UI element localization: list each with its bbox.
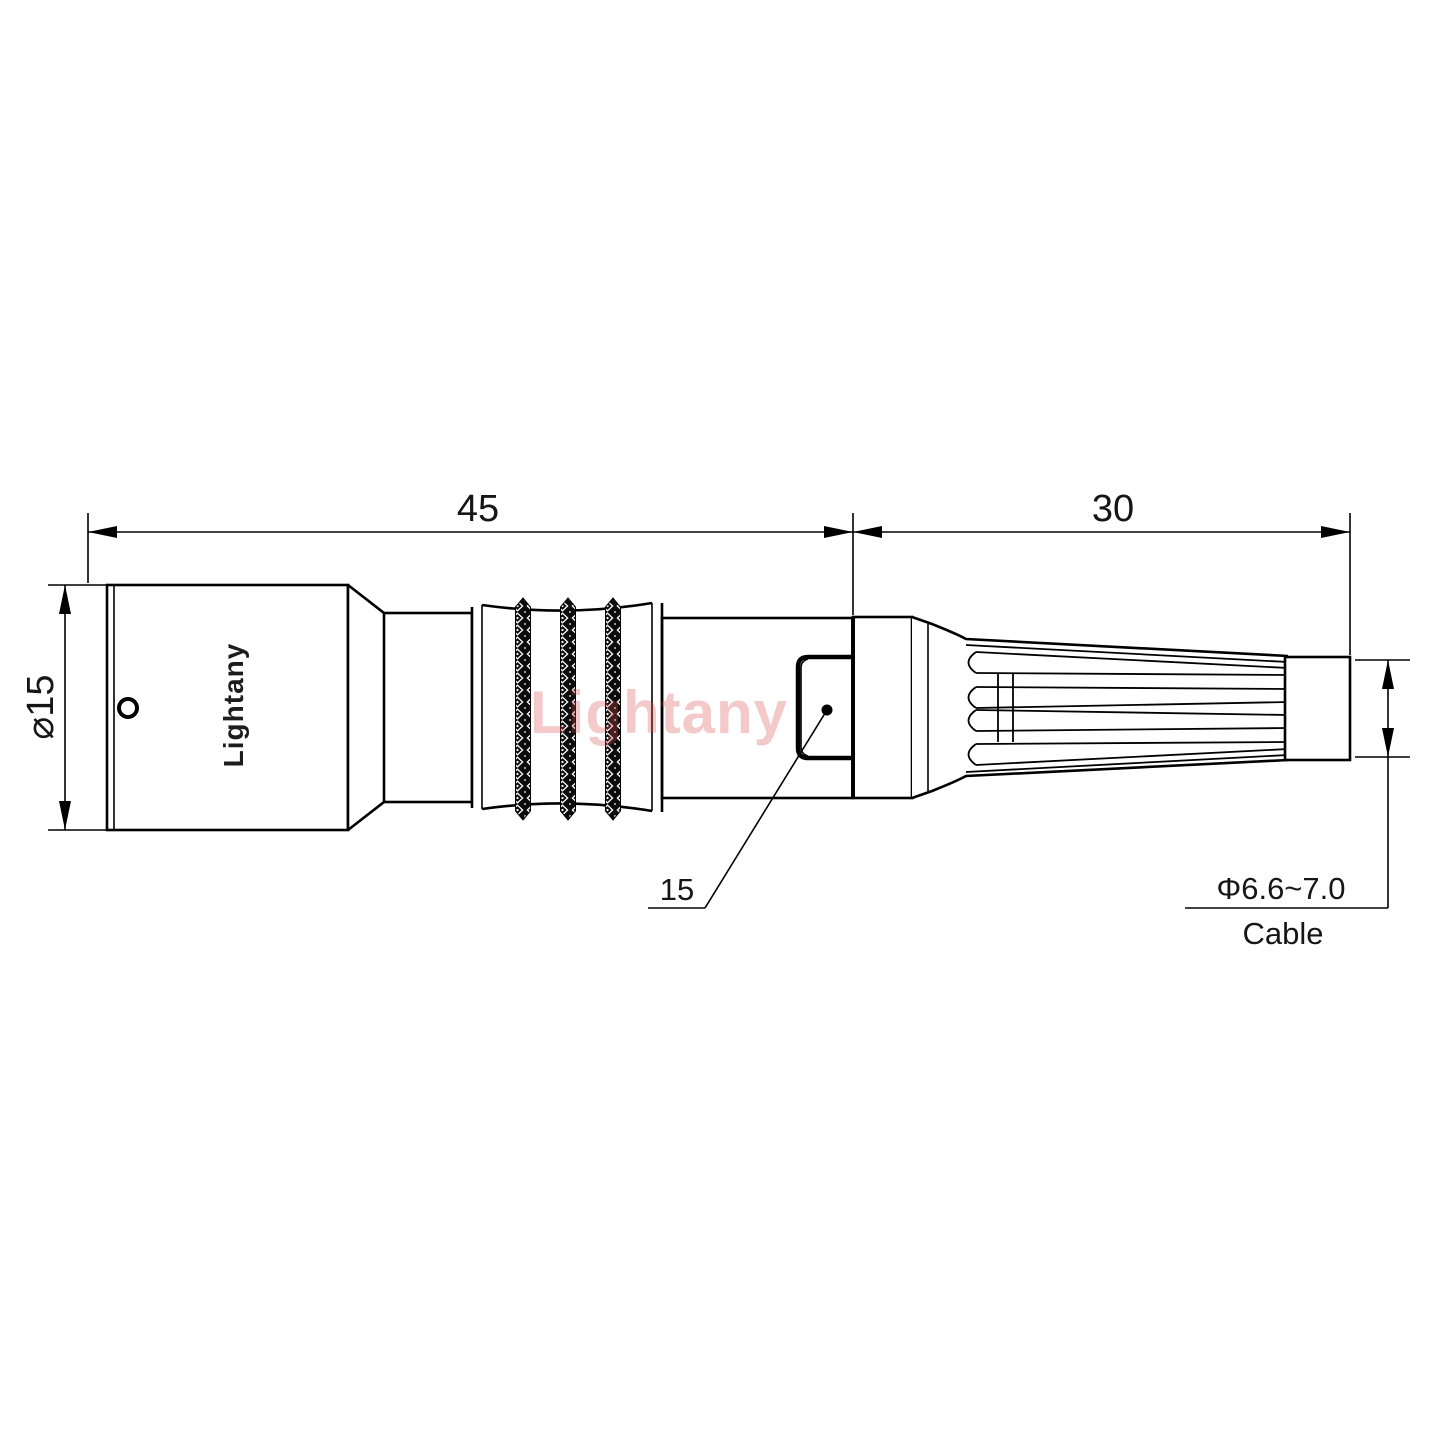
- leader-dot: [822, 705, 833, 716]
- brand-label: Lightany: [218, 643, 249, 768]
- drawing-canvas: 45 30 ⌀15 Lightany: [0, 0, 1440, 1440]
- cable-entry: [1285, 657, 1350, 760]
- knurl-ring: [516, 598, 531, 820]
- neck-section: [384, 613, 472, 802]
- cable-label: Cable: [1243, 916, 1324, 951]
- rear-ring: [853, 617, 912, 798]
- front-length-value: 45: [457, 488, 499, 530]
- latch-position-value: 15: [660, 872, 694, 907]
- strain-relief-boot: [912, 617, 1350, 798]
- connector-body: Lightany: [107, 585, 912, 830]
- knurl-ring: [606, 598, 621, 820]
- body-diameter-value: ⌀15: [20, 674, 62, 739]
- body-hole: [119, 699, 137, 717]
- knurl-ring: [561, 598, 576, 820]
- boot-length-value: 30: [1092, 488, 1134, 530]
- connector-technical-drawing: 45 30 ⌀15 Lightany: [0, 0, 1440, 1440]
- dimension-body-diameter: ⌀15: [20, 585, 113, 830]
- cable-diameter-value: Φ6.6~7.0: [1216, 871, 1345, 906]
